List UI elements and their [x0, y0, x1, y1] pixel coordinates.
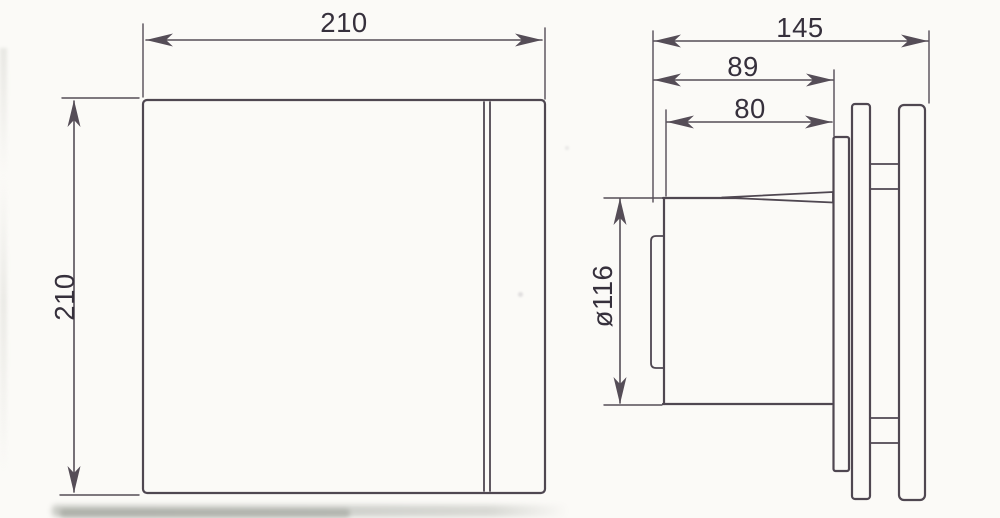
dimension-front-width: 210	[143, 7, 545, 99]
inlet-collar-bump	[651, 236, 664, 368]
plates	[834, 104, 926, 500]
depth-to-plate-label: 89	[727, 51, 759, 82]
front-width-label: 210	[320, 7, 367, 38]
overall-depth-label: 145	[776, 12, 823, 43]
body-diameter-label: ø116	[587, 265, 618, 328]
scan-speck	[518, 292, 523, 297]
inner-mounting-plate	[834, 137, 850, 471]
fan-body	[604, 192, 833, 405]
technical-drawing: 210 210	[0, 0, 1000, 517]
scan-speck	[565, 146, 569, 150]
dimension-overall-depth: 145	[654, 12, 929, 103]
back-plate	[852, 104, 870, 499]
side-view: 145 89 80 ø	[587, 12, 929, 500]
front-view: 210 210	[49, 7, 545, 495]
scan-edge-streak	[0, 48, 7, 472]
dimension-front-height: 210	[49, 98, 139, 495]
dimension-body-depth: 80	[666, 93, 832, 196]
damper-blade-wedge	[722, 192, 833, 203]
front-cover-plate	[899, 105, 925, 500]
front-height-label: 210	[49, 273, 80, 320]
body-depth-label: 80	[734, 93, 766, 124]
drawing-canvas: 210 210	[0, 0, 1000, 517]
dimension-body-diameter: ø116	[587, 198, 627, 404]
